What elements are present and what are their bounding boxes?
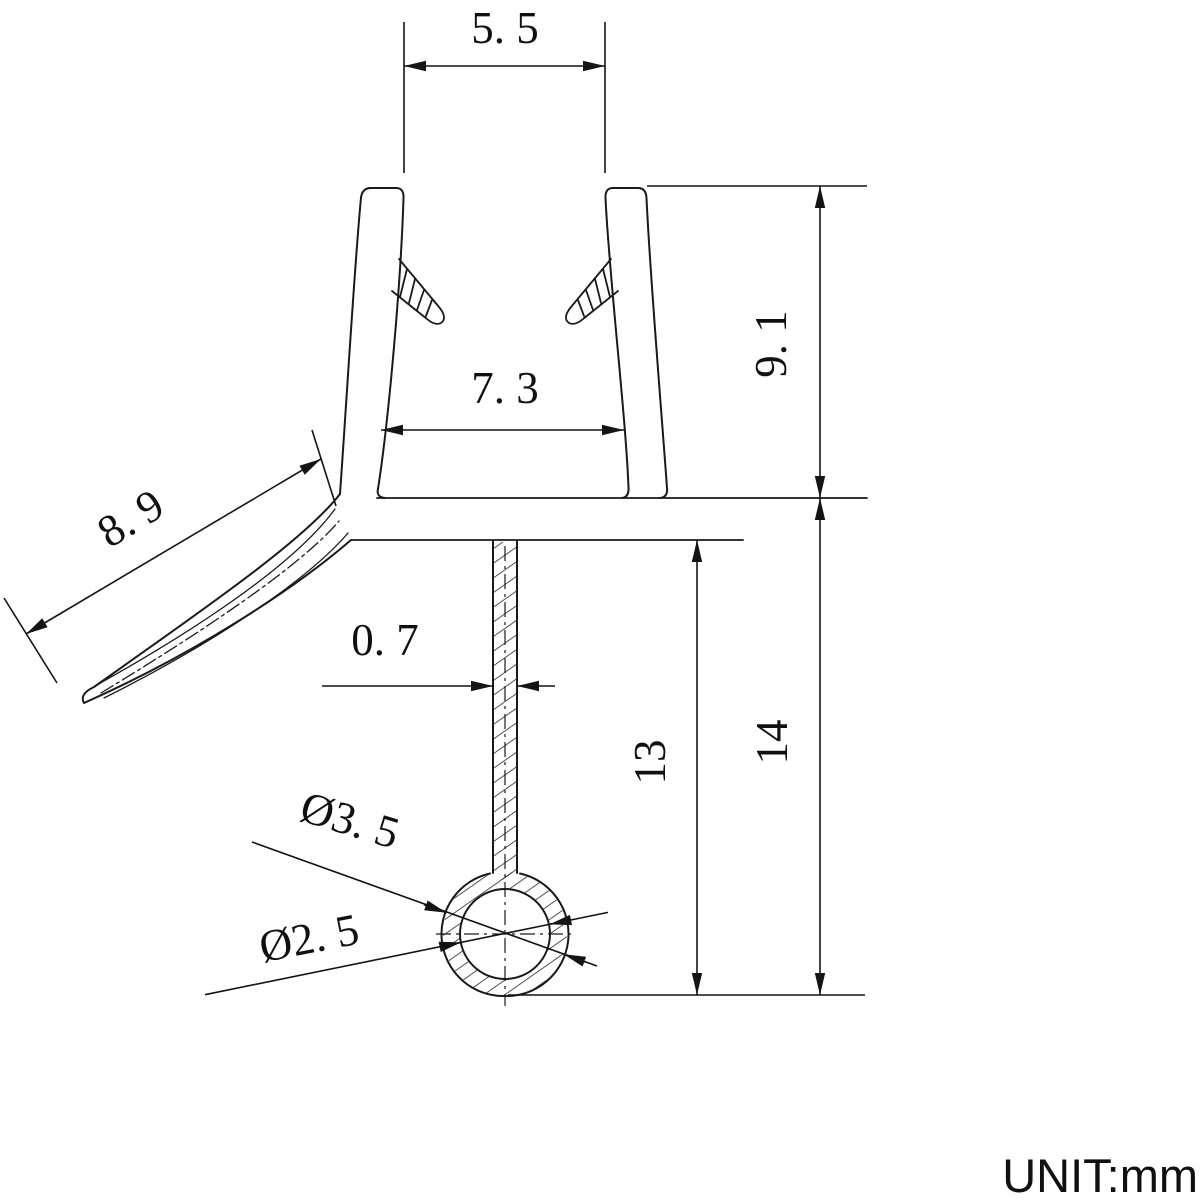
- dim-text-flap-length: 8. 9: [89, 479, 173, 557]
- leader-arrow-dia-3-5-b: [564, 954, 586, 962]
- ext-line-8-9-upper: [312, 430, 336, 506]
- unit-label: UNIT:mm: [1002, 1149, 1198, 1200]
- leader-arrow-dia-3-5-a: [424, 905, 447, 913]
- ext-line-8-9-lower: [4, 598, 57, 683]
- dim-text-stem-width: 0. 7: [351, 615, 419, 665]
- technical-drawing-page: 5. 5 7. 3 9. 1 8. 9 0. 7 13 14 Ø3. 5 Ø2.…: [0, 0, 1200, 1200]
- dim-text-bulb-inner-diameter: Ø2. 5: [255, 904, 363, 972]
- u-channel-left-wall: [340, 188, 404, 498]
- u-channel-right-wall: [605, 188, 667, 498]
- dim-text-stem-height: 13: [625, 740, 675, 785]
- dim-text-total-height: 14: [747, 720, 797, 765]
- dim-text-inner-width: 7. 3: [471, 363, 539, 413]
- dim-line-8-9: [26, 459, 321, 634]
- dim-text-channel-height: 9. 1: [746, 310, 796, 378]
- dim-text-bulb-outer-diameter: Ø3. 5: [295, 781, 405, 858]
- seal-profile-drawing: 5. 5 7. 3 9. 1 8. 9 0. 7 13 14 Ø3. 5 Ø2.…: [0, 0, 1200, 1200]
- dim-text-top-opening: 5. 5: [471, 3, 539, 53]
